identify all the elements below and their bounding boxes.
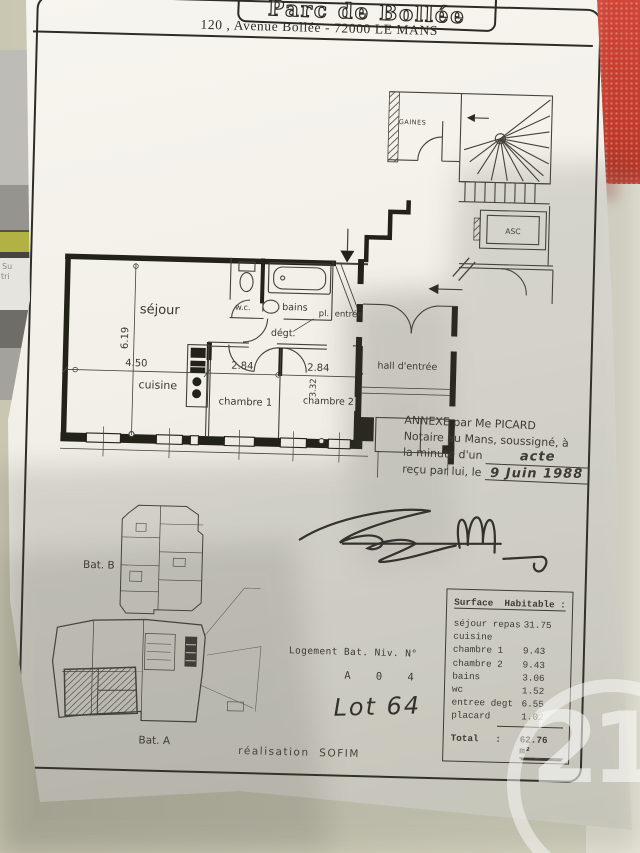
logement-block: Logement Bat. Niv. N° A 0 4 Lot 64 [287,645,439,722]
connector-wall [366,199,409,263]
door-arc [411,305,440,334]
surface-table-title: Surface Habitable : [454,597,567,611]
room-labels: séjour cuisine chambre 1 chambre 2 w.c. … [137,298,439,413]
notary-signature [287,491,574,593]
wc-label: w.c. [235,303,251,312]
bat-a-label: Bat. A [138,734,171,747]
handwritten-lot-number: Lot 64 [333,691,421,721]
hall-label: hall d'entrée [377,361,437,374]
door-arc [243,318,268,343]
window-band [60,425,369,463]
logement-values: A 0 4 [344,670,438,684]
entrance-marker-icon [340,228,355,262]
stair-steps [459,182,550,204]
bathtub-icon [268,263,331,295]
placard-label: pl. [319,309,330,319]
highlighted-unit [63,665,138,717]
dim-chambre2-width: 2.84 [307,363,330,375]
entry-arrow-icon [428,284,462,295]
notary-annotation: ANNEXE par Me PICARD Notaire au Mans, so… [402,413,591,485]
door-arc [282,348,307,373]
chambre1-label: chambre 1 [218,396,272,408]
dim-sejour-width: 4.50 [125,358,148,370]
dim-chambre2-height: 3.32 [309,378,319,397]
toilet-icon [238,262,255,292]
dim-chambre1-width: 2.84 [231,361,254,373]
stairwell-block [365,91,557,304]
duct-lines [453,257,476,281]
degt-label: dégt. [271,328,296,340]
sejour-label: séjour [140,302,181,318]
building-b-outline [120,505,204,615]
closet [335,264,360,314]
bains-label: bains [282,302,308,314]
cuisine-label: cuisine [138,378,177,392]
bat-b-label: Bat. B [83,559,115,572]
sink-icon [263,300,279,313]
gaines-room [388,92,462,164]
photographed-document: Su tri Parc de Bollée 120 , Avenue Bollé… [0,0,640,853]
stair-fan-icon [463,98,550,182]
dimension-lines [61,261,366,441]
direction-arrow-icon [467,114,489,123]
interior-walls [204,342,362,440]
door-arc [500,269,527,296]
total-label: Total : [450,732,520,758]
dim-sejour-height: 6.19 [120,327,132,350]
century21-watermark: 21 [531,692,640,806]
handwritten-date: 9 Juin 1988 [490,466,583,482]
gaines-label: GAINES [399,118,427,127]
door-arc [254,347,279,372]
handwritten-acte: acte [520,449,556,465]
outer-wall-left [63,254,68,437]
site-plan: Bat. B Bat. A [29,491,267,789]
asc-label: ASC [505,227,520,236]
outer-wall-top [65,256,336,263]
apartment [60,221,374,463]
property-lines [199,587,262,712]
entree-label: entrée [335,308,363,320]
door-arc [383,305,412,334]
kitchen-appliances-icon [186,345,209,408]
